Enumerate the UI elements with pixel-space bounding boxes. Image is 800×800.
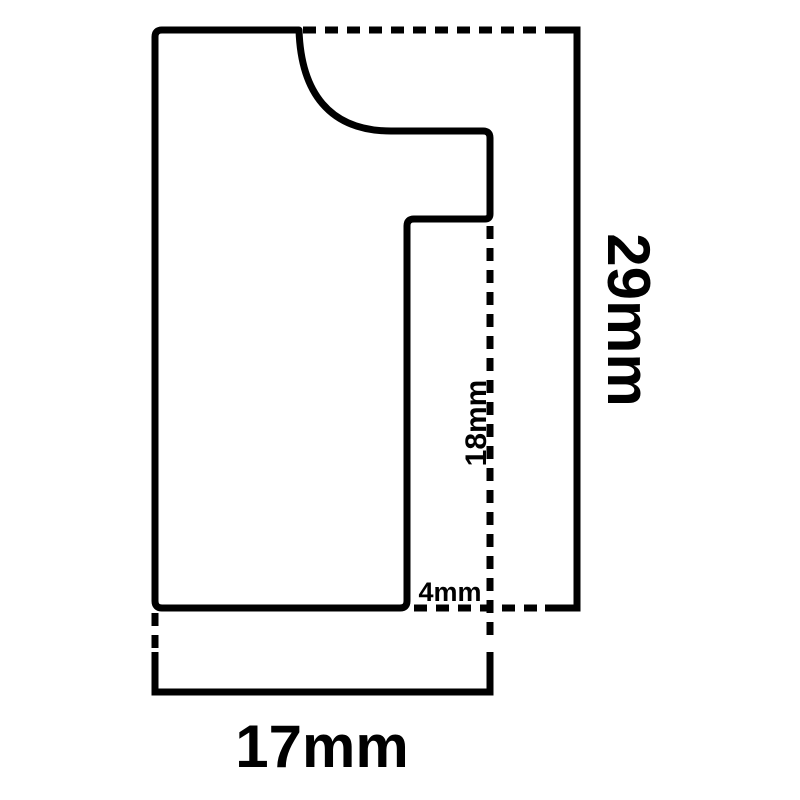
moulding-profile-diagram: 29mm 18mm 4mm 17mm (0, 0, 800, 800)
profile-outline (155, 30, 490, 608)
width-dimension-label: 17mm (235, 713, 408, 780)
dimension-line-width (155, 652, 490, 692)
height-dimension-label: 29mm (595, 233, 662, 406)
profile-drawing-svg: 29mm 18mm 4mm 17mm (0, 0, 800, 800)
rebate-width-dimension-label: 4mm (418, 577, 481, 607)
inner-height-dimension-label: 18mm (460, 380, 493, 467)
dimension-line-height (545, 30, 577, 608)
